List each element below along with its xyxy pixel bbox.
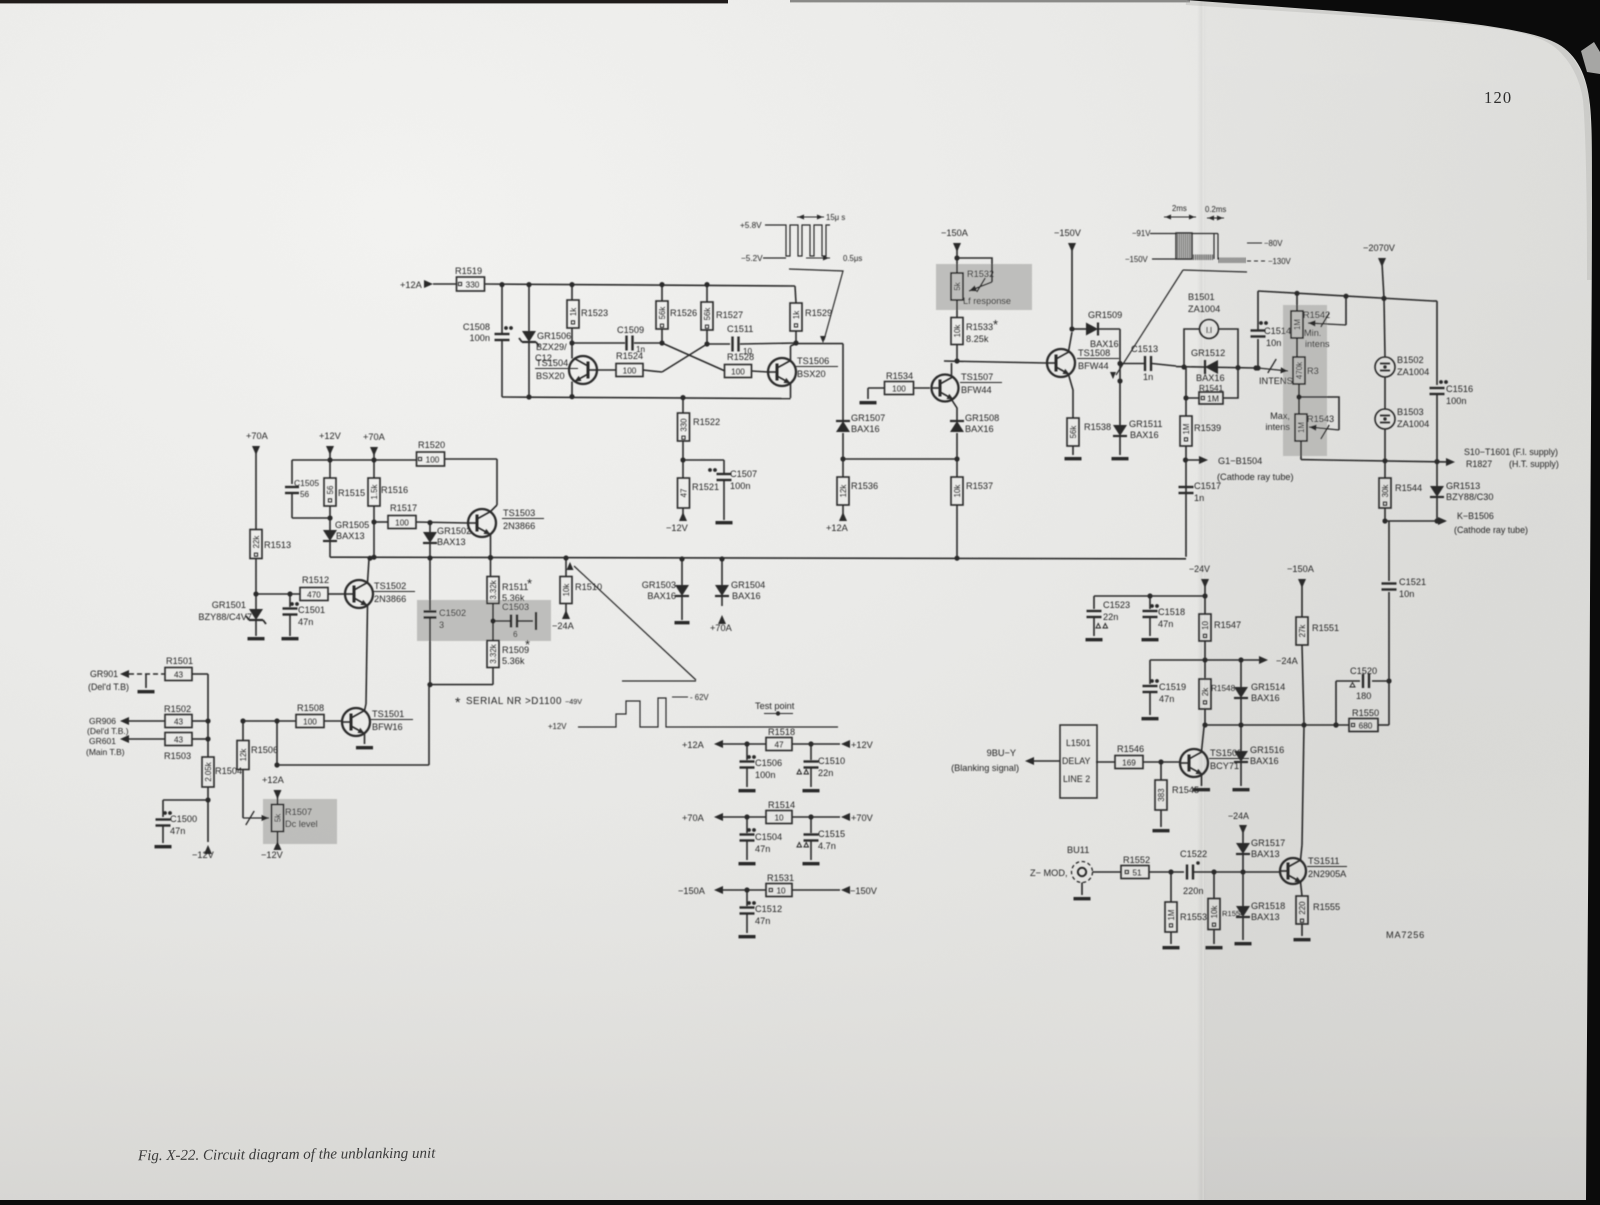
svg-text:2N3866: 2N3866 bbox=[374, 594, 406, 604]
svg-text:BAX16: BAX16 bbox=[965, 424, 994, 434]
svg-text:10: 10 bbox=[1201, 621, 1210, 630]
svg-text:C1511: C1511 bbox=[727, 324, 753, 334]
svg-text:Z− MOD,: Z− MOD, bbox=[1030, 868, 1068, 878]
svg-text:GR1517: GR1517 bbox=[1251, 838, 1285, 848]
svg-text:10k: 10k bbox=[953, 485, 962, 498]
svg-text:R1521: R1521 bbox=[692, 482, 719, 492]
svg-text:1M: 1M bbox=[1207, 393, 1219, 403]
svg-text:R1532: R1532 bbox=[967, 269, 994, 279]
svg-text:l.l: l.l bbox=[1206, 326, 1212, 335]
svg-text:B1503: B1503 bbox=[1397, 407, 1424, 417]
svg-text:+5.8V: +5.8V bbox=[740, 221, 762, 230]
svg-text:+12A: +12A bbox=[262, 775, 285, 785]
svg-text:R1537: R1537 bbox=[966, 481, 993, 491]
svg-text:*: * bbox=[527, 576, 532, 591]
svg-text:8.25k: 8.25k bbox=[966, 334, 989, 344]
svg-text:R1506: R1506 bbox=[251, 745, 278, 755]
svg-text:R3: R3 bbox=[1307, 366, 1319, 376]
svg-text:BAX16: BAX16 bbox=[1130, 430, 1159, 440]
svg-text:+70V: +70V bbox=[851, 813, 874, 823]
svg-text:−5.2V: −5.2V bbox=[741, 254, 763, 263]
svg-text:(Del'd T.B): (Del'd T.B) bbox=[88, 682, 129, 692]
svg-text:R1527: R1527 bbox=[716, 310, 743, 320]
svg-text:B1501: B1501 bbox=[1188, 292, 1215, 302]
svg-text:R1551: R1551 bbox=[1312, 623, 1339, 633]
svg-text:−150A: −150A bbox=[941, 228, 969, 238]
svg-text:C1504: C1504 bbox=[755, 832, 782, 842]
svg-text:+70A: +70A bbox=[363, 432, 386, 442]
svg-text:1.5k: 1.5k bbox=[370, 484, 379, 499]
svg-text:GR1516: GR1516 bbox=[1250, 745, 1284, 755]
svg-text:100n: 100n bbox=[730, 481, 750, 491]
svg-text:R1507: R1507 bbox=[285, 807, 312, 817]
svg-text:R1552: R1552 bbox=[1123, 855, 1150, 865]
svg-text:R1524: R1524 bbox=[616, 351, 643, 361]
svg-text:+12V: +12V bbox=[851, 740, 874, 750]
svg-text:R1545: R1545 bbox=[1172, 785, 1199, 795]
svg-text:−150V: −150V bbox=[1054, 228, 1082, 238]
svg-text:47n: 47n bbox=[170, 826, 185, 836]
svg-text:R1508: R1508 bbox=[297, 703, 324, 713]
svg-text:BAX16: BAX16 bbox=[1251, 693, 1280, 703]
svg-text:3: 3 bbox=[439, 620, 444, 630]
svg-text:TS1506: TS1506 bbox=[797, 356, 829, 366]
svg-text:R1534: R1534 bbox=[886, 371, 913, 381]
svg-text:K−B1506: K−B1506 bbox=[1457, 511, 1494, 521]
svg-text:Fig. X-22. Circuit diagram of: Fig. X-22. Circuit diagram of the unblan… bbox=[137, 1146, 436, 1165]
svg-text:BAX16: BAX16 bbox=[851, 424, 880, 434]
svg-text:ZA1004: ZA1004 bbox=[1188, 304, 1220, 314]
svg-text:470k: 470k bbox=[1295, 362, 1304, 379]
svg-text:22n: 22n bbox=[1103, 612, 1118, 622]
svg-text:L1501: L1501 bbox=[1066, 738, 1091, 748]
svg-text:47n: 47n bbox=[1158, 619, 1173, 629]
svg-text:Max,: Max, bbox=[1270, 411, 1290, 421]
svg-text:383: 383 bbox=[1157, 788, 1166, 802]
svg-text:BAX16: BAX16 bbox=[1196, 373, 1225, 383]
svg-text:R1514: R1514 bbox=[768, 800, 795, 810]
svg-text:R1522: R1522 bbox=[693, 417, 720, 427]
svg-text:R1502: R1502 bbox=[164, 704, 191, 714]
svg-text:1n: 1n bbox=[1194, 493, 1204, 503]
svg-text:R1510: R1510 bbox=[575, 582, 602, 592]
svg-text:GR901: GR901 bbox=[90, 669, 118, 679]
svg-text:*: * bbox=[993, 317, 998, 332]
svg-text:−12V: −12V bbox=[192, 850, 215, 860]
svg-text:15μ s: 15μ s bbox=[826, 213, 845, 222]
svg-text:−24A: −24A bbox=[1276, 656, 1299, 666]
svg-text:BZY88/C4V7: BZY88/C4V7 bbox=[198, 612, 252, 622]
svg-text:2N3866: 2N3866 bbox=[503, 521, 535, 531]
svg-text:TS1504: TS1504 bbox=[536, 358, 568, 368]
svg-text:43: 43 bbox=[174, 670, 184, 679]
svg-text:680: 680 bbox=[1359, 721, 1373, 730]
svg-text:TS1511: TS1511 bbox=[1308, 856, 1340, 866]
svg-text:100: 100 bbox=[426, 455, 440, 464]
svg-text:C1500: C1500 bbox=[170, 814, 197, 824]
svg-text:C1522: C1522 bbox=[1180, 849, 1207, 859]
svg-text:BFW16: BFW16 bbox=[372, 722, 403, 732]
svg-text:(Del'd T.B.): (Del'd T.B.) bbox=[87, 726, 129, 736]
svg-text:100: 100 bbox=[731, 367, 745, 376]
svg-text:C1501: C1501 bbox=[298, 605, 325, 615]
svg-text:R1523: R1523 bbox=[581, 308, 608, 318]
svg-text:51: 51 bbox=[1132, 868, 1142, 877]
svg-text:2ms: 2ms bbox=[1172, 204, 1187, 213]
svg-text:100n: 100n bbox=[755, 770, 775, 780]
svg-text:1k: 1k bbox=[792, 311, 801, 319]
svg-text:GR1502: GR1502 bbox=[437, 526, 471, 536]
svg-text:R1526: R1526 bbox=[670, 308, 697, 318]
svg-text:C1515: C1515 bbox=[818, 829, 845, 839]
svg-text:9BU−Y: 9BU−Y bbox=[987, 748, 1016, 758]
svg-text:10: 10 bbox=[774, 813, 784, 822]
svg-text:C1507: C1507 bbox=[730, 469, 757, 479]
svg-text:R1533: R1533 bbox=[966, 322, 993, 332]
svg-text:2N2905A: 2N2905A bbox=[1308, 869, 1347, 879]
svg-text:R1513: R1513 bbox=[264, 540, 291, 550]
svg-text:G1−B1504: G1−B1504 bbox=[1218, 456, 1262, 466]
svg-text:R1539: R1539 bbox=[1194, 423, 1221, 433]
svg-text:R1541: R1541 bbox=[1199, 384, 1224, 393]
svg-text:−49V: −49V bbox=[565, 697, 582, 706]
svg-text:R1511: R1511 bbox=[502, 582, 528, 592]
svg-text:0.2ms: 0.2ms bbox=[1205, 205, 1226, 214]
svg-text:−150A: −150A bbox=[1287, 564, 1315, 574]
svg-text:BAX16: BAX16 bbox=[732, 591, 761, 601]
svg-text:1M: 1M bbox=[1297, 422, 1306, 433]
svg-text:R1516: R1516 bbox=[381, 485, 408, 495]
svg-text:56k: 56k bbox=[658, 307, 667, 320]
svg-text:GR1507: GR1507 bbox=[851, 413, 885, 423]
svg-text:- 62V: - 62V bbox=[690, 693, 709, 702]
svg-text:10n: 10n bbox=[1266, 338, 1281, 348]
svg-text:1M: 1M bbox=[1293, 319, 1302, 330]
svg-text:−2070V: −2070V bbox=[1363, 243, 1396, 253]
svg-text:GR906: GR906 bbox=[89, 716, 116, 726]
svg-text:BFW44: BFW44 bbox=[961, 385, 992, 395]
svg-text:+12A: +12A bbox=[400, 280, 423, 290]
svg-text:47: 47 bbox=[680, 489, 689, 498]
svg-text:*: * bbox=[525, 637, 530, 652]
svg-text:BSX20: BSX20 bbox=[536, 371, 565, 381]
svg-text:470: 470 bbox=[307, 590, 321, 599]
svg-text:R1550: R1550 bbox=[1352, 708, 1379, 718]
svg-text:(Cathode ray tube): (Cathode ray tube) bbox=[1217, 472, 1294, 482]
svg-text:R1547: R1547 bbox=[1214, 620, 1241, 630]
svg-text:56k: 56k bbox=[703, 308, 712, 321]
svg-text:R1536: R1536 bbox=[851, 481, 878, 491]
svg-text:R1504: R1504 bbox=[215, 766, 242, 776]
svg-text:TS1508: TS1508 bbox=[1078, 348, 1110, 358]
svg-text:C1516: C1516 bbox=[1446, 384, 1473, 394]
svg-text:GR1514: GR1514 bbox=[1251, 682, 1285, 692]
svg-text:R1544: R1544 bbox=[1395, 483, 1422, 493]
svg-text:GR601: GR601 bbox=[89, 736, 116, 746]
svg-text:−150V: −150V bbox=[850, 886, 878, 896]
svg-text:330: 330 bbox=[466, 280, 480, 289]
svg-text:BSX20: BSX20 bbox=[797, 369, 826, 379]
svg-text:+70A: +70A bbox=[710, 623, 733, 633]
svg-text:BAX13: BAX13 bbox=[336, 531, 365, 541]
svg-text:56: 56 bbox=[300, 490, 310, 499]
svg-text:R1529: R1529 bbox=[805, 308, 832, 318]
svg-text:47: 47 bbox=[774, 740, 784, 749]
svg-text:BZX29/: BZX29/ bbox=[536, 342, 567, 352]
svg-text:220: 220 bbox=[1298, 901, 1307, 915]
svg-text:27k: 27k bbox=[1298, 625, 1307, 638]
svg-text:22n: 22n bbox=[818, 768, 833, 778]
svg-text:(Blanking signal): (Blanking signal) bbox=[951, 763, 1019, 773]
svg-text:C1510: C1510 bbox=[818, 756, 845, 766]
svg-text:12k: 12k bbox=[839, 485, 848, 498]
svg-text:GR1506: GR1506 bbox=[537, 331, 571, 341]
svg-text:100: 100 bbox=[623, 366, 637, 375]
svg-text:3.32k: 3.32k bbox=[489, 580, 498, 599]
svg-text:Min.: Min. bbox=[1304, 328, 1321, 338]
svg-text:BAX13: BAX13 bbox=[437, 537, 466, 547]
svg-text:BAX13: BAX13 bbox=[1251, 849, 1280, 859]
svg-text:R1538: R1538 bbox=[1084, 422, 1111, 432]
svg-text:R1827: R1827 bbox=[1466, 459, 1492, 469]
svg-text:INTENS: INTENS bbox=[1259, 376, 1293, 386]
svg-text:BU11: BU11 bbox=[1067, 845, 1089, 855]
svg-text:GR1512: GR1512 bbox=[1191, 348, 1225, 358]
svg-text:R1546: R1546 bbox=[1117, 744, 1144, 754]
svg-text:Test point: Test point bbox=[755, 701, 795, 711]
svg-text:C1523: C1523 bbox=[1103, 600, 1130, 610]
svg-text:−91V: −91V bbox=[1132, 229, 1151, 238]
svg-text:GR1501: GR1501 bbox=[212, 600, 246, 610]
svg-text:1M: 1M bbox=[1167, 910, 1176, 921]
svg-text:Lf response: Lf response bbox=[963, 296, 1011, 306]
svg-text:43: 43 bbox=[174, 717, 184, 726]
svg-text:−150A: −150A bbox=[678, 886, 706, 896]
svg-text:C1520: C1520 bbox=[1350, 666, 1377, 676]
svg-text:5.36k: 5.36k bbox=[502, 656, 525, 666]
svg-text:GR1505: GR1505 bbox=[335, 520, 369, 530]
svg-text:6: 6 bbox=[513, 630, 518, 639]
svg-text:BAX13: BAX13 bbox=[1251, 912, 1280, 922]
svg-text:10k: 10k bbox=[562, 584, 571, 597]
svg-text:R1553: R1553 bbox=[1180, 912, 1207, 922]
svg-text:BAX16: BAX16 bbox=[1090, 339, 1119, 349]
svg-text:intens: intens bbox=[1265, 422, 1290, 432]
svg-text:−12V: −12V bbox=[666, 523, 689, 533]
svg-text:GR1511: GR1511 bbox=[1129, 419, 1163, 429]
svg-text:330: 330 bbox=[680, 418, 689, 432]
svg-text:C1514: C1514 bbox=[1264, 326, 1291, 336]
svg-text:12k: 12k bbox=[239, 749, 248, 762]
svg-text:10: 10 bbox=[776, 886, 786, 895]
svg-text:ZA1004: ZA1004 bbox=[1397, 419, 1429, 429]
svg-text:30k: 30k bbox=[1381, 485, 1390, 498]
svg-text:LINE 2: LINE 2 bbox=[1063, 774, 1090, 784]
svg-text:2.05k: 2.05k bbox=[204, 762, 213, 781]
svg-text:10k: 10k bbox=[953, 325, 962, 338]
svg-text:BAX16: BAX16 bbox=[647, 591, 676, 601]
svg-text:47n: 47n bbox=[755, 916, 770, 926]
svg-text:+12A: +12A bbox=[682, 740, 705, 750]
svg-text:BFW44: BFW44 bbox=[1078, 361, 1109, 371]
svg-text:R1501: R1501 bbox=[166, 656, 193, 666]
svg-text:4.7n: 4.7n bbox=[818, 841, 836, 851]
svg-text:C1506: C1506 bbox=[755, 758, 782, 768]
svg-text:−24V: −24V bbox=[1189, 564, 1210, 574]
svg-text:C1509: C1509 bbox=[617, 325, 644, 335]
svg-text:5k: 5k bbox=[953, 282, 962, 290]
svg-text:C1512: C1512 bbox=[755, 904, 782, 914]
svg-text:120: 120 bbox=[1484, 88, 1512, 107]
svg-text:43: 43 bbox=[174, 735, 184, 744]
svg-text:GR1508: GR1508 bbox=[965, 413, 999, 423]
svg-text:10n: 10n bbox=[1399, 589, 1414, 599]
svg-text:TS1501: TS1501 bbox=[372, 709, 404, 719]
svg-text:B1502: B1502 bbox=[1397, 355, 1424, 365]
svg-text:−24A: −24A bbox=[1228, 811, 1249, 821]
svg-text:47n: 47n bbox=[755, 844, 770, 854]
svg-text:(Cathode ray tube): (Cathode ray tube) bbox=[1454, 525, 1528, 535]
svg-text:SERIAL NR >D1100: SERIAL NR >D1100 bbox=[466, 696, 562, 707]
svg-text:ZA1004: ZA1004 bbox=[1397, 367, 1429, 377]
svg-text:Dc level: Dc level bbox=[285, 819, 318, 829]
svg-text:(Main T.B): (Main T.B) bbox=[86, 747, 125, 757]
svg-text:R1515: R1515 bbox=[338, 488, 365, 498]
svg-text:R1503: R1503 bbox=[164, 751, 191, 761]
svg-text:TS1502: TS1502 bbox=[374, 581, 406, 591]
svg-text:0.5μs: 0.5μs bbox=[843, 254, 862, 263]
svg-text:C1517: C1517 bbox=[1194, 481, 1221, 491]
svg-text:MA7256: MA7256 bbox=[1386, 930, 1425, 940]
svg-text:BZY88/C30: BZY88/C30 bbox=[1446, 492, 1494, 502]
svg-text:R1555: R1555 bbox=[1313, 902, 1340, 912]
svg-text:3.32k: 3.32k bbox=[489, 644, 498, 663]
svg-text:R1512: R1512 bbox=[302, 575, 329, 585]
svg-text:GR1503: GR1503 bbox=[642, 580, 676, 590]
svg-text:10k: 10k bbox=[1210, 906, 1219, 919]
svg-text:C1503: C1503 bbox=[502, 602, 529, 612]
svg-text:C1521: C1521 bbox=[1399, 577, 1426, 587]
svg-text:−150V: −150V bbox=[1125, 255, 1149, 264]
svg-text:−12V: −12V bbox=[261, 850, 284, 860]
svg-text:220n: 220n bbox=[1183, 886, 1203, 896]
svg-text:56k: 56k bbox=[1069, 426, 1078, 439]
svg-text:+12V: +12V bbox=[548, 722, 567, 731]
svg-text:−130V: −130V bbox=[1268, 257, 1292, 266]
svg-text:169: 169 bbox=[1122, 758, 1136, 767]
svg-text:*: * bbox=[455, 694, 461, 710]
svg-text:22k: 22k bbox=[252, 536, 261, 549]
svg-text:C1508: C1508 bbox=[463, 322, 490, 332]
svg-text:GR1509: GR1509 bbox=[1088, 310, 1122, 320]
svg-text:100: 100 bbox=[303, 717, 317, 726]
svg-text:−80V: −80V bbox=[1264, 239, 1283, 248]
svg-text:47n: 47n bbox=[298, 617, 313, 627]
svg-text:2k: 2k bbox=[1201, 688, 1210, 696]
svg-text:R1528: R1528 bbox=[727, 352, 754, 362]
svg-text:R1543: R1543 bbox=[1307, 414, 1334, 424]
svg-text:C1502: C1502 bbox=[439, 608, 466, 618]
svg-text:+12V: +12V bbox=[319, 431, 342, 441]
svg-text:R1520: R1520 bbox=[418, 440, 445, 450]
svg-text:C1518: C1518 bbox=[1158, 607, 1185, 617]
svg-text:R1531: R1531 bbox=[767, 873, 794, 883]
svg-text:C1519: C1519 bbox=[1159, 682, 1186, 692]
svg-text:S10−T1601 (F.l. supply): S10−T1601 (F.l. supply) bbox=[1464, 447, 1558, 457]
svg-text:C1505: C1505 bbox=[294, 478, 319, 488]
svg-text:1M: 1M bbox=[1182, 424, 1191, 435]
svg-text:+70A: +70A bbox=[246, 431, 269, 441]
svg-text:DELAY: DELAY bbox=[1062, 756, 1091, 766]
svg-text:GR1513: GR1513 bbox=[1446, 481, 1480, 491]
svg-text:47n: 47n bbox=[1159, 694, 1174, 704]
svg-text:+70A: +70A bbox=[682, 813, 705, 823]
svg-text:R1548: R1548 bbox=[1211, 684, 1236, 693]
svg-text:BAX16: BAX16 bbox=[1250, 756, 1279, 766]
svg-text:(H.T. supply): (H.T. supply) bbox=[1509, 459, 1559, 469]
svg-text:TS1503: TS1503 bbox=[503, 508, 535, 518]
svg-text:R1517: R1517 bbox=[390, 503, 417, 513]
svg-text:+12A: +12A bbox=[826, 523, 849, 533]
svg-text:100: 100 bbox=[395, 518, 409, 527]
svg-text:intens: intens bbox=[1305, 339, 1330, 349]
svg-text:1k: 1k bbox=[569, 308, 578, 316]
svg-text:GR1504: GR1504 bbox=[731, 580, 765, 590]
svg-text:−24A: −24A bbox=[552, 621, 575, 631]
svg-text:R1518: R1518 bbox=[768, 727, 795, 737]
svg-text:180: 180 bbox=[1356, 691, 1371, 701]
svg-text:100n: 100n bbox=[1446, 396, 1466, 406]
svg-text:56: 56 bbox=[326, 485, 335, 494]
svg-text:100: 100 bbox=[892, 384, 906, 393]
svg-text:1n: 1n bbox=[1143, 372, 1153, 382]
svg-text:R1519: R1519 bbox=[455, 266, 482, 276]
svg-text:5k: 5k bbox=[274, 814, 283, 822]
svg-text:GR1518: GR1518 bbox=[1251, 901, 1285, 911]
svg-text:TS1507: TS1507 bbox=[961, 372, 993, 382]
svg-text:100n: 100n bbox=[470, 333, 490, 343]
